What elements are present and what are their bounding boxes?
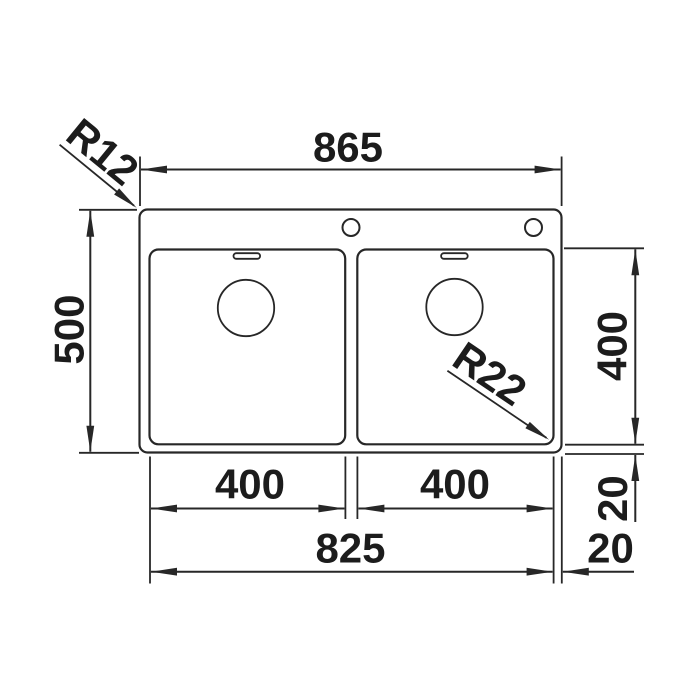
svg-text:20: 20 (589, 475, 636, 522)
svg-text:400: 400 (589, 311, 636, 381)
svg-text:20: 20 (587, 525, 634, 572)
svg-text:400: 400 (215, 461, 285, 508)
svg-text:500: 500 (46, 295, 93, 365)
svg-text:400: 400 (420, 461, 490, 508)
svg-text:865: 865 (313, 123, 383, 170)
svg-text:825: 825 (315, 525, 385, 572)
